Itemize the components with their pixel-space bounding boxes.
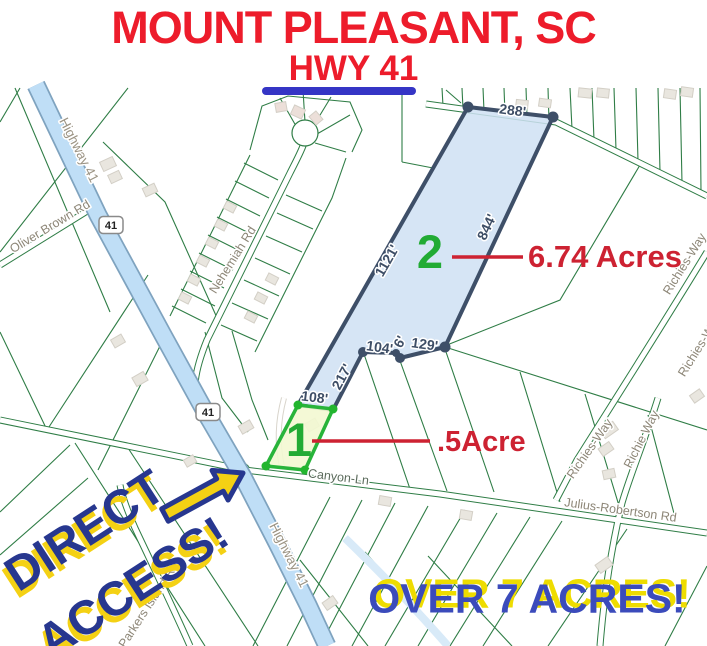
route-41-shield-top: 41 <box>99 217 123 234</box>
parcel-1-number: 1 <box>286 413 312 466</box>
parcel-2-number: 2 <box>417 225 443 278</box>
subtitle-underline <box>262 87 416 95</box>
cul-de-sac <box>292 120 318 146</box>
parcel-1-acreage: .5Acre <box>437 426 526 458</box>
dim-108: 108' <box>300 387 328 406</box>
route-41-shield-top-text: 41 <box>105 220 117 232</box>
over-7-acres-callout: OVER 7 ACRES! <box>368 576 685 623</box>
parcel-2-acreage: 6.74 Acres <box>528 239 682 274</box>
route-41-shield-bottom: 41 <box>196 404 220 421</box>
route-41-shield-bottom-text: 41 <box>202 407 214 419</box>
dim-288: 288' <box>498 100 526 119</box>
page-subtitle: HWY 41 <box>0 49 707 89</box>
listing-map-graphic: 288' 844' 1121' 104' 6' 129' 217' 108' H… <box>0 0 707 646</box>
page-title: MOUNT PLEASANT, SC <box>0 2 707 54</box>
